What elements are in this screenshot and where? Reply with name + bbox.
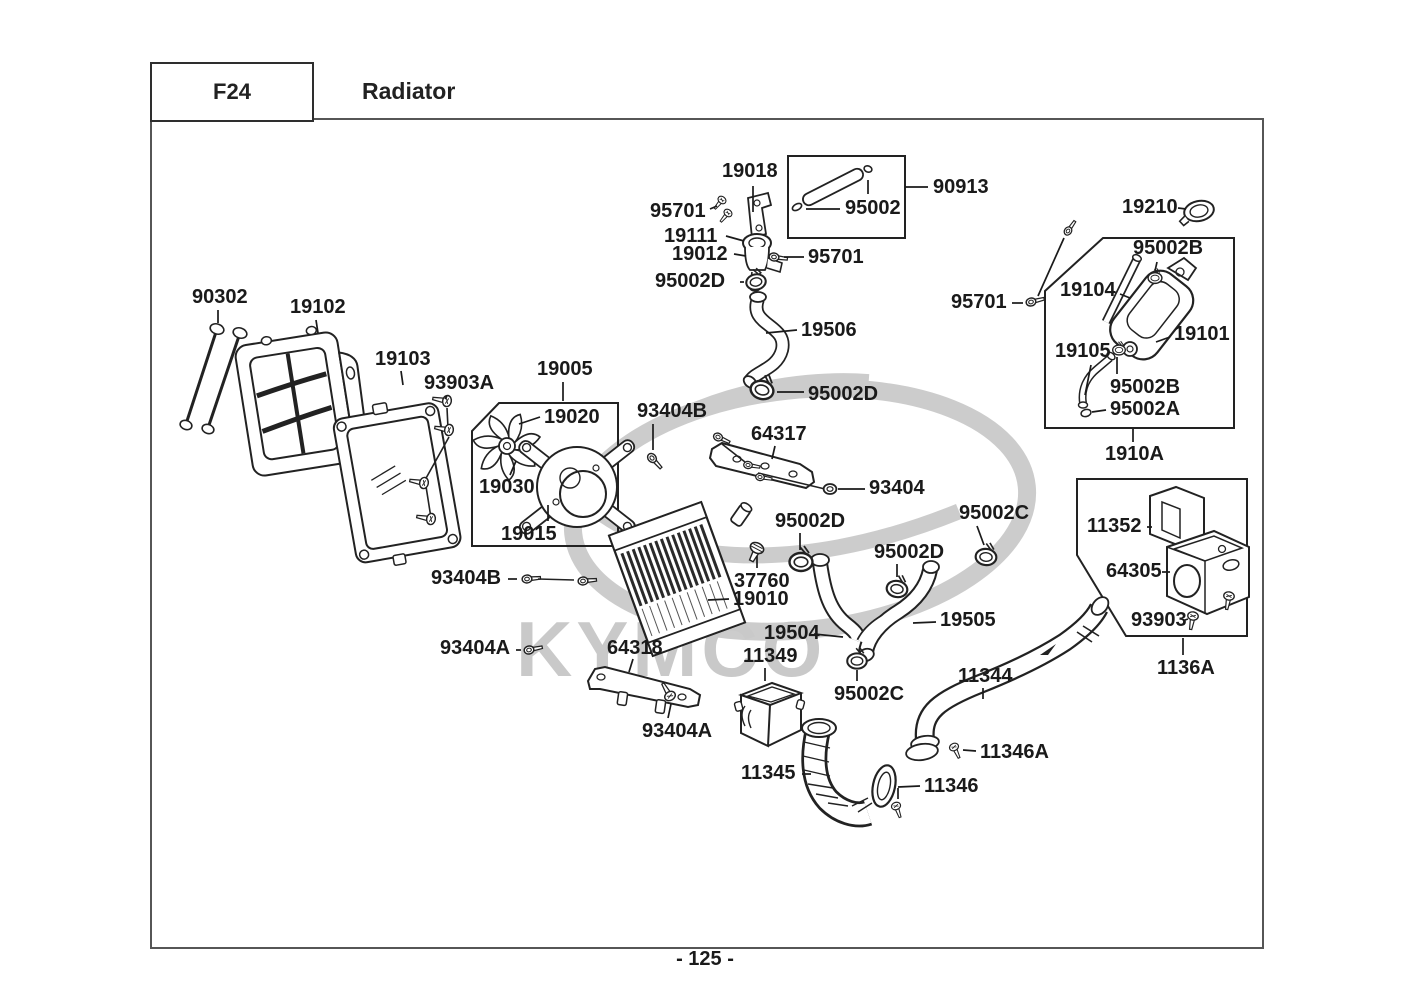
page-title: Radiator (362, 78, 455, 105)
section-code-box: F24 (150, 62, 314, 122)
hose-11344-part (905, 594, 1112, 762)
reservoir-group (1063, 219, 1201, 418)
duct-64305-part (1167, 531, 1249, 630)
section-code: F24 (213, 79, 251, 105)
cap-19210-part (1176, 198, 1216, 226)
fan-shroud-part (517, 438, 638, 536)
mount-screws-90302 (179, 322, 248, 435)
tube-95002-part (791, 165, 873, 212)
bracket-64317-part (710, 432, 825, 489)
page-number: - 125 - (150, 948, 1260, 971)
radiator-frame-part (331, 394, 464, 572)
kymco-watermark-mark: KYMCO (516, 359, 1039, 693)
catalog-page: F24 Radiator (0, 0, 1415, 1000)
bellows-11345-part (802, 719, 868, 814)
hose-19506-part (741, 292, 782, 390)
diagram-svg: KYMCO (0, 0, 1415, 1000)
joint-11346-part (852, 763, 904, 819)
radiator-neck-part (730, 501, 753, 527)
